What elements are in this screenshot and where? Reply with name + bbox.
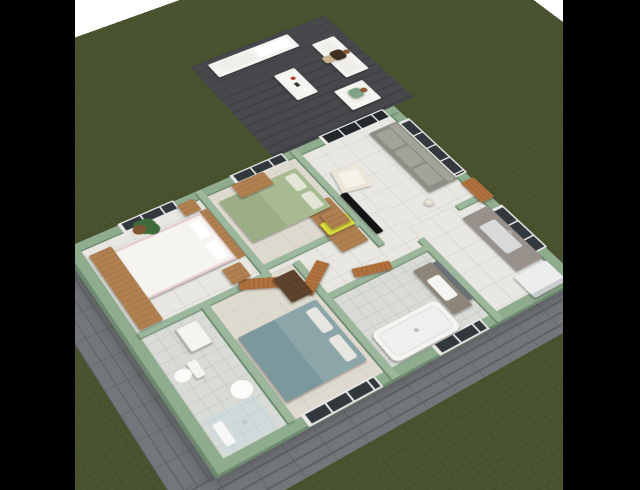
armchair-seat <box>337 168 365 188</box>
table-decor-cup <box>302 87 308 91</box>
ground-plane-lawn <box>75 0 563 490</box>
letterbox-left <box>0 0 75 490</box>
letterbox-right <box>563 0 640 490</box>
sofa-cushion <box>253 37 293 58</box>
render-backdrop <box>75 0 563 490</box>
table-decor-dark <box>294 82 301 87</box>
screenshot-stage <box>0 0 640 490</box>
outdoor-coffee-table <box>274 68 319 101</box>
sofa-cushion <box>216 51 257 72</box>
table-decor-red <box>290 76 297 80</box>
shower-drain <box>241 419 248 425</box>
